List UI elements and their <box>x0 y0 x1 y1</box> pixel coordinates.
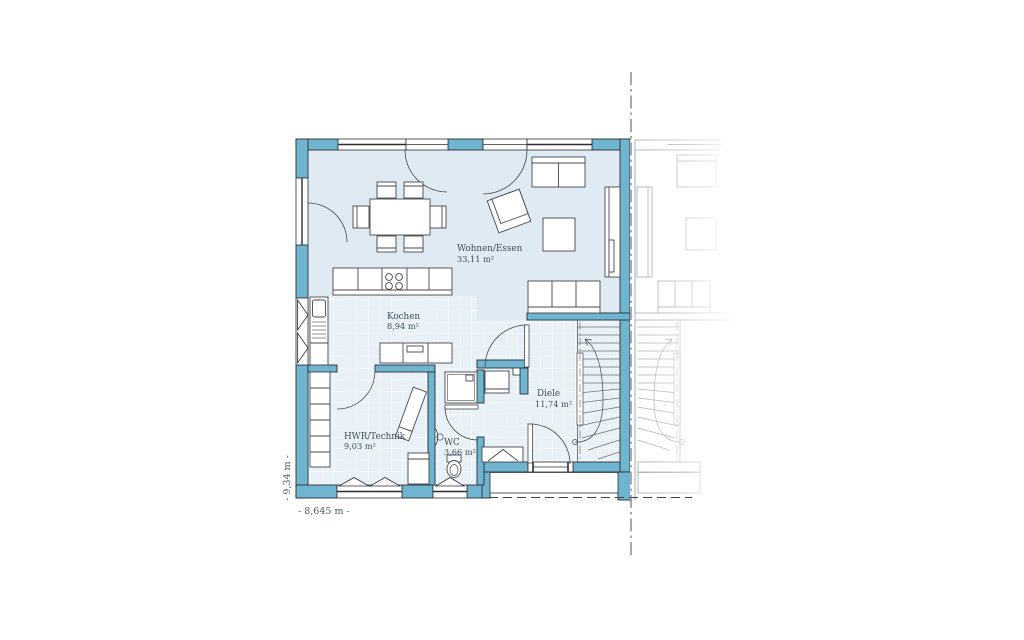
neighbor-coffee-table <box>686 218 716 250</box>
neighbor-sofa-three-seat <box>658 281 710 313</box>
terrace-door-top-1 <box>406 139 448 150</box>
kitchen-sink-counter <box>310 297 328 365</box>
dimension-width: - 8,645 m - <box>298 506 350 517</box>
neighbor-platform <box>638 473 700 494</box>
toilet <box>447 455 461 478</box>
room-area-diele: 11,74 m² <box>535 399 572 409</box>
sofa-two-seat <box>532 157 585 187</box>
room-label-wohnen-essen: Wohnen/Essen <box>457 244 523 254</box>
entry-door-panel <box>528 462 573 472</box>
dimension-height: - 9,34 m - <box>282 455 293 501</box>
room-area-kochen: 8,94 m² <box>387 321 419 331</box>
window-kitchen <box>296 298 308 365</box>
coffee-table <box>543 218 575 251</box>
floorplan-svg: Wohnen/Essen 33,11 m² Kochen 8,94 m² HWR… <box>0 0 1024 640</box>
neighbor-bottom-wall <box>638 462 700 472</box>
diele-door-leaf <box>525 325 530 367</box>
terrace-door-top-2 <box>483 139 527 150</box>
wc-door-leaf <box>445 405 478 409</box>
neighbor-sofa-two-seat <box>677 155 716 187</box>
kitchen-counter <box>333 268 452 295</box>
room-area-hwr: 9,03 m² <box>344 441 376 451</box>
room-area-wc: 3,66 m² <box>444 447 476 457</box>
shower <box>445 372 477 403</box>
neighbor-staircase <box>638 320 685 462</box>
diele-cabinet <box>485 371 509 393</box>
wall-duct-notch <box>513 368 520 375</box>
window-top-1 <box>338 139 406 150</box>
kitchen-sink <box>313 300 326 317</box>
entry-door-leaf <box>528 424 533 463</box>
neighbor-sideboard <box>637 187 652 277</box>
room-area-wohnen-essen: 33,11 m² <box>457 254 494 264</box>
neighbor-unit <box>635 140 750 493</box>
tv-sideboard <box>605 187 620 277</box>
window-top-2 <box>527 139 592 150</box>
neighbor-diele-wall <box>635 313 750 320</box>
shoe-cabinet <box>482 447 523 462</box>
room-label-diele: Diele <box>537 389 560 399</box>
kitchen-island <box>380 343 452 363</box>
floorplan-page: Wohnen/Essen 33,11 m² Kochen 8,94 m² HWR… <box>0 0 1024 640</box>
hwr-cabinet <box>408 453 429 484</box>
side-door-left <box>296 178 308 245</box>
sofa-three-seat <box>528 281 600 313</box>
hwr-shelf <box>310 372 330 467</box>
dining-table <box>370 199 430 235</box>
